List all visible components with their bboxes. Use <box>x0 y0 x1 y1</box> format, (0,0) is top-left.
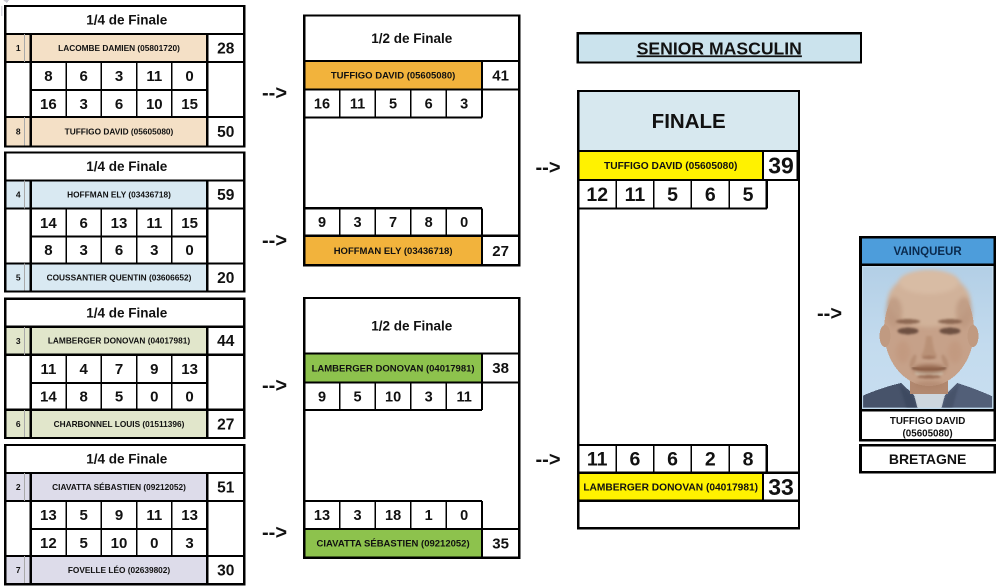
svg-text:12: 12 <box>40 535 57 552</box>
svg-text:35: 35 <box>492 536 509 553</box>
svg-text:1: 1 <box>16 43 21 53</box>
svg-text:0: 0 <box>150 535 158 552</box>
svg-text:CHARBONNEL LOUIS (01511396): CHARBONNEL LOUIS (01511396) <box>54 419 185 429</box>
svg-text:11: 11 <box>146 507 162 524</box>
svg-text:6: 6 <box>425 97 433 113</box>
svg-text:3: 3 <box>353 215 361 231</box>
svg-text:13: 13 <box>40 507 57 524</box>
svg-text:7: 7 <box>389 215 397 231</box>
svg-text:39: 39 <box>768 153 794 179</box>
svg-text:-->: --> <box>536 157 561 179</box>
svg-text:11: 11 <box>40 361 56 378</box>
svg-text:5: 5 <box>667 184 678 206</box>
svg-text:9: 9 <box>150 361 158 378</box>
svg-text:-->: --> <box>262 83 287 105</box>
svg-text:11: 11 <box>457 389 472 405</box>
svg-text:9: 9 <box>318 215 326 231</box>
svg-text:59: 59 <box>217 187 235 204</box>
svg-text:10: 10 <box>111 535 128 552</box>
svg-text:3: 3 <box>80 96 88 113</box>
svg-text:18: 18 <box>385 508 401 524</box>
svg-text:10: 10 <box>146 96 163 113</box>
svg-text:TUFFIGO DAVID (05605080): TUFFIGO DAVID (05605080) <box>604 161 737 172</box>
svg-text:15: 15 <box>181 96 198 113</box>
svg-text:0: 0 <box>460 215 468 231</box>
svg-text:38: 38 <box>492 360 509 377</box>
svg-text:FOVELLE LÉO (02639802): FOVELLE LÉO (02639802) <box>68 565 171 575</box>
svg-text:44: 44 <box>217 333 235 350</box>
svg-text:11: 11 <box>350 97 365 113</box>
svg-text:0: 0 <box>460 508 468 524</box>
svg-text:LACOMBE DAMIEN (05801720): LACOMBE DAMIEN (05801720) <box>58 43 180 53</box>
svg-text:28: 28 <box>217 40 235 57</box>
svg-text:2: 2 <box>705 449 716 471</box>
svg-text:16: 16 <box>40 96 57 113</box>
svg-text:FINALE: FINALE <box>652 110 726 133</box>
svg-text:33: 33 <box>768 474 794 500</box>
svg-text:VAINQUEUR: VAINQUEUR <box>894 246 963 258</box>
svg-text:CIAVATTA SÉBASTIEN (09212052): CIAVATTA SÉBASTIEN (09212052) <box>317 539 470 550</box>
svg-text:-->: --> <box>262 522 287 544</box>
svg-text:10: 10 <box>385 389 401 405</box>
svg-text:(05605080): (05605080) <box>903 429 953 440</box>
svg-text:3: 3 <box>150 242 158 259</box>
svg-text:16: 16 <box>314 97 330 113</box>
svg-text:1/4 de Finale: 1/4 de Finale <box>86 159 168 174</box>
svg-text:0: 0 <box>185 242 193 259</box>
svg-text:6: 6 <box>629 449 640 471</box>
svg-text:13: 13 <box>314 508 330 524</box>
svg-text:8: 8 <box>44 242 52 259</box>
svg-text:3: 3 <box>353 508 361 524</box>
svg-text:51: 51 <box>217 479 235 496</box>
svg-text:8: 8 <box>16 127 21 137</box>
svg-text:3: 3 <box>425 389 433 405</box>
svg-text:6: 6 <box>80 215 88 232</box>
svg-text:LAMBERGER DONOVAN (04017981): LAMBERGER DONOVAN (04017981) <box>312 363 475 374</box>
svg-text:4: 4 <box>80 361 89 378</box>
svg-text:27: 27 <box>217 416 234 433</box>
svg-text:4: 4 <box>16 190 21 200</box>
svg-text:TUFFIGO DAVID (05605080): TUFFIGO DAVID (05605080) <box>331 71 455 82</box>
svg-text:2: 2 <box>16 482 21 492</box>
svg-text:30: 30 <box>217 563 234 580</box>
svg-text:6: 6 <box>705 184 716 206</box>
svg-text:11: 11 <box>625 184 646 206</box>
svg-text:5: 5 <box>389 97 397 113</box>
svg-text:13: 13 <box>111 215 128 232</box>
svg-text:6: 6 <box>80 68 88 85</box>
svg-text:8: 8 <box>44 68 52 85</box>
svg-text:5: 5 <box>743 184 754 206</box>
svg-text:13: 13 <box>181 507 198 524</box>
svg-text:9: 9 <box>115 507 123 524</box>
svg-text:SENIOR MASCULIN: SENIOR MASCULIN <box>637 38 802 58</box>
svg-text:1/4 de Finale: 1/4 de Finale <box>86 452 168 467</box>
svg-text:5: 5 <box>16 273 21 283</box>
svg-text:1/4 de Finale: 1/4 de Finale <box>86 13 168 28</box>
svg-text:COUSSANTIER QUENTIN (03606652): COUSSANTIER QUENTIN (03606652) <box>47 272 192 282</box>
svg-text:TUFFIGO DAVID: TUFFIGO DAVID <box>890 416 965 427</box>
svg-text:5: 5 <box>80 507 88 524</box>
svg-text:6: 6 <box>16 419 21 429</box>
svg-text:-->: --> <box>262 230 287 252</box>
svg-text:9: 9 <box>318 389 326 405</box>
svg-text:1/2 de Finale: 1/2 de Finale <box>371 31 453 46</box>
svg-text:7: 7 <box>115 361 123 378</box>
svg-text:20: 20 <box>217 270 234 287</box>
svg-text:5: 5 <box>80 535 88 552</box>
svg-text:0: 0 <box>185 389 193 406</box>
svg-text:27: 27 <box>492 243 509 260</box>
svg-text:15: 15 <box>181 215 198 232</box>
svg-text:1/2 de Finale: 1/2 de Finale <box>371 319 453 334</box>
svg-text:13: 13 <box>181 361 198 378</box>
svg-text:8: 8 <box>743 449 754 471</box>
svg-text:-->: --> <box>536 449 561 471</box>
svg-text:3: 3 <box>115 68 123 85</box>
svg-text:11: 11 <box>146 215 162 232</box>
svg-text:14: 14 <box>40 215 57 232</box>
svg-text:50: 50 <box>217 124 234 141</box>
svg-text:3: 3 <box>185 535 193 552</box>
svg-text:3: 3 <box>80 242 88 259</box>
svg-text:12: 12 <box>586 184 608 206</box>
svg-text:3: 3 <box>460 97 468 113</box>
svg-text:11: 11 <box>146 68 162 85</box>
svg-text:6: 6 <box>115 242 123 259</box>
svg-text:3: 3 <box>16 336 21 346</box>
svg-text:0: 0 <box>185 68 193 85</box>
svg-text:-->: --> <box>262 375 287 397</box>
svg-text:41: 41 <box>492 68 509 85</box>
svg-text:5: 5 <box>353 389 361 405</box>
svg-text:7: 7 <box>16 565 21 575</box>
svg-text:11: 11 <box>587 449 608 471</box>
svg-text:0: 0 <box>150 389 158 406</box>
svg-text:1: 1 <box>425 508 433 524</box>
svg-text:1/4 de Finale: 1/4 de Finale <box>86 306 168 321</box>
svg-text:6: 6 <box>667 449 678 471</box>
svg-text:BRETAGNE: BRETAGNE <box>889 451 967 467</box>
svg-text:LAMBERGER DONOVAN (04017981): LAMBERGER DONOVAN (04017981) <box>48 336 191 346</box>
svg-text:TUFFIGO DAVID (05605080): TUFFIGO DAVID (05605080) <box>65 127 174 137</box>
svg-text:6: 6 <box>115 96 123 113</box>
svg-text:-->: --> <box>817 303 842 325</box>
svg-text:LAMBERGER DONOVAN (04017981): LAMBERGER DONOVAN (04017981) <box>583 482 758 493</box>
svg-text:5: 5 <box>115 389 123 406</box>
svg-text:8: 8 <box>425 215 433 231</box>
svg-text:HOFFMAN ELY (03436718): HOFFMAN ELY (03436718) <box>334 246 453 257</box>
svg-text:CIAVATTA SÉBASTIEN (09212052): CIAVATTA SÉBASTIEN (09212052) <box>52 482 186 492</box>
svg-text:8: 8 <box>80 389 88 406</box>
svg-text:HOFFMAN ELY (03436718): HOFFMAN ELY (03436718) <box>67 189 171 199</box>
svg-text:14: 14 <box>40 389 57 406</box>
